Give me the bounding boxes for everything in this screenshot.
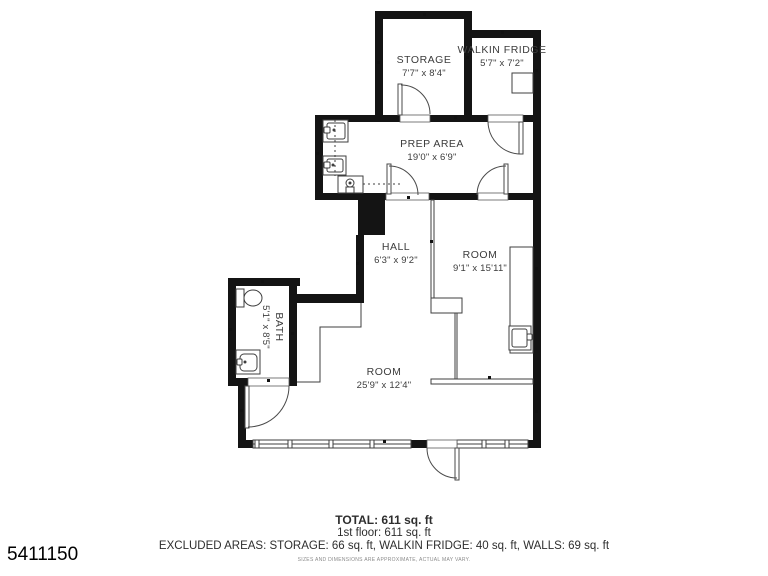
bath-area-door [245, 386, 289, 428]
room-dimensions: 7'7" x 8'4" [397, 67, 452, 80]
prep-left-door [387, 164, 418, 195]
room-name: WALKIN FRIDGE [458, 44, 547, 57]
room-dimensions: 5'1" x 8'5" [259, 305, 272, 349]
room-label-room-right: ROOM 9'1" x 15'11" [453, 249, 507, 275]
bath-sink-icon [236, 350, 260, 374]
room-label-walkin-fridge: WALKIN FRIDGE 5'7" x 7'2" [458, 44, 547, 70]
room-label-room-main: ROOM 25'9" x 12'4" [357, 366, 412, 392]
room-name: ROOM [453, 249, 507, 262]
counter-sink-icon [509, 326, 532, 350]
room-label-bath: BATH 5'1" x 8'5" [259, 305, 285, 349]
room-label-hall: HALL 6'3" x 9'2" [374, 241, 418, 267]
fridge-shelf-icon [512, 73, 533, 93]
area-summary: TOTAL: 611 sq. ft 1st floor: 611 sq. ft … [0, 514, 768, 563]
room-label-prep-area: PREP AREA 19'0" x 6'9" [400, 138, 464, 164]
room-name: ROOM [357, 366, 412, 379]
prep-equipment-icon [338, 176, 363, 193]
fridge-door [488, 122, 523, 154]
room-name: BATH [272, 305, 285, 349]
room-dimensions: 19'0" x 6'9" [400, 151, 464, 164]
storage-door [398, 84, 430, 115]
thin-partitions [297, 200, 533, 384]
disclaimer-text: SIZES AND DIMENSIONS ARE APPROXIMATE, AC… [0, 557, 768, 563]
room-name: STORAGE [397, 54, 452, 67]
room-dimensions: 5'7" x 7'2" [458, 57, 547, 70]
room-dimensions: 9'1" x 15'11" [453, 262, 507, 275]
floor-plan-drawing [0, 0, 768, 576]
total-area: TOTAL: 611 sq. ft [0, 514, 768, 527]
room-dimensions: 25'9" x 12'4" [357, 379, 412, 392]
floor-plan: STORAGE 7'7" x 8'4" WALKIN FRIDGE 5'7" x… [0, 0, 768, 576]
room-dimensions: 6'3" x 9'2" [374, 254, 418, 267]
listing-id: 5411150 [7, 544, 78, 566]
room-name: PREP AREA [400, 138, 464, 151]
window-band [253, 440, 528, 448]
prep-right-door [477, 164, 508, 195]
floor-area: 1st floor: 611 sq. ft [0, 527, 768, 540]
excluded-areas: EXCLUDED AREAS: STORAGE: 66 sq. ft, WALK… [0, 540, 768, 553]
room-label-storage: STORAGE 7'7" x 8'4" [397, 54, 452, 80]
room-name: HALL [374, 241, 418, 254]
entry-door [427, 448, 459, 480]
